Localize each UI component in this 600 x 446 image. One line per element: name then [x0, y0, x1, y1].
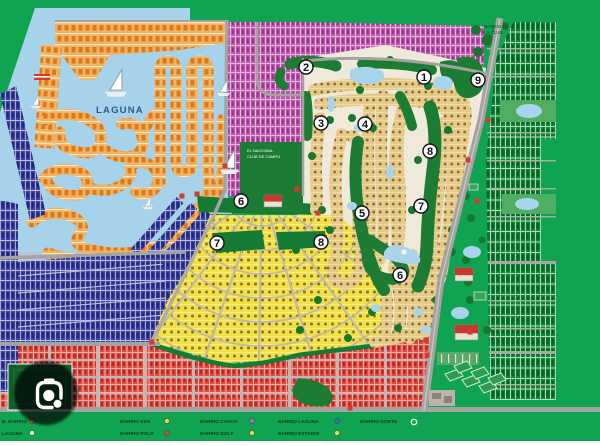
svg-text:BARRIO LAGUNA: BARRIO LAGUNA: [278, 419, 319, 425]
svg-text:B. BARRIO: B. BARRIO: [2, 419, 27, 425]
svg-text:CLUB DE CAMPO: CLUB DE CAMPO: [247, 154, 280, 159]
svg-text:BARRIO CASCO: BARRIO CASCO: [200, 419, 238, 425]
svg-text:6: 6: [397, 270, 403, 282]
svg-text:BARRIO NORTE: BARRIO NORTE: [360, 419, 398, 425]
svg-text:8: 8: [427, 146, 433, 158]
svg-text:4: 4: [362, 119, 369, 131]
svg-text:7: 7: [418, 201, 424, 213]
svg-text:6: 6: [238, 196, 244, 208]
svg-text:EL NACIONAL: EL NACIONAL: [247, 148, 274, 153]
svg-text:BARRIO POLO: BARRIO POLO: [120, 431, 154, 437]
svg-text:3: 3: [318, 118, 324, 130]
svg-text:9: 9: [475, 75, 481, 87]
svg-text:BARRIO ESTADIO: BARRIO ESTADIO: [278, 431, 319, 437]
svg-text:LA CLUB: LA CLUB: [484, 30, 503, 35]
svg-text:LAGUNA: LAGUNA: [2, 431, 23, 437]
svg-text:7: 7: [214, 238, 220, 250]
svg-text:BARRIO KEN: BARRIO KEN: [120, 419, 151, 425]
svg-text:BARRIO GOLF: BARRIO GOLF: [200, 431, 234, 437]
svg-text:LAGUNA: LAGUNA: [96, 105, 144, 116]
svg-text:BARRIO CL: BARRIO CL: [484, 24, 509, 29]
svg-text:8: 8: [318, 237, 324, 249]
svg-text:5: 5: [359, 208, 365, 220]
svg-text:1: 1: [421, 72, 427, 84]
svg-text:2: 2: [303, 62, 309, 74]
